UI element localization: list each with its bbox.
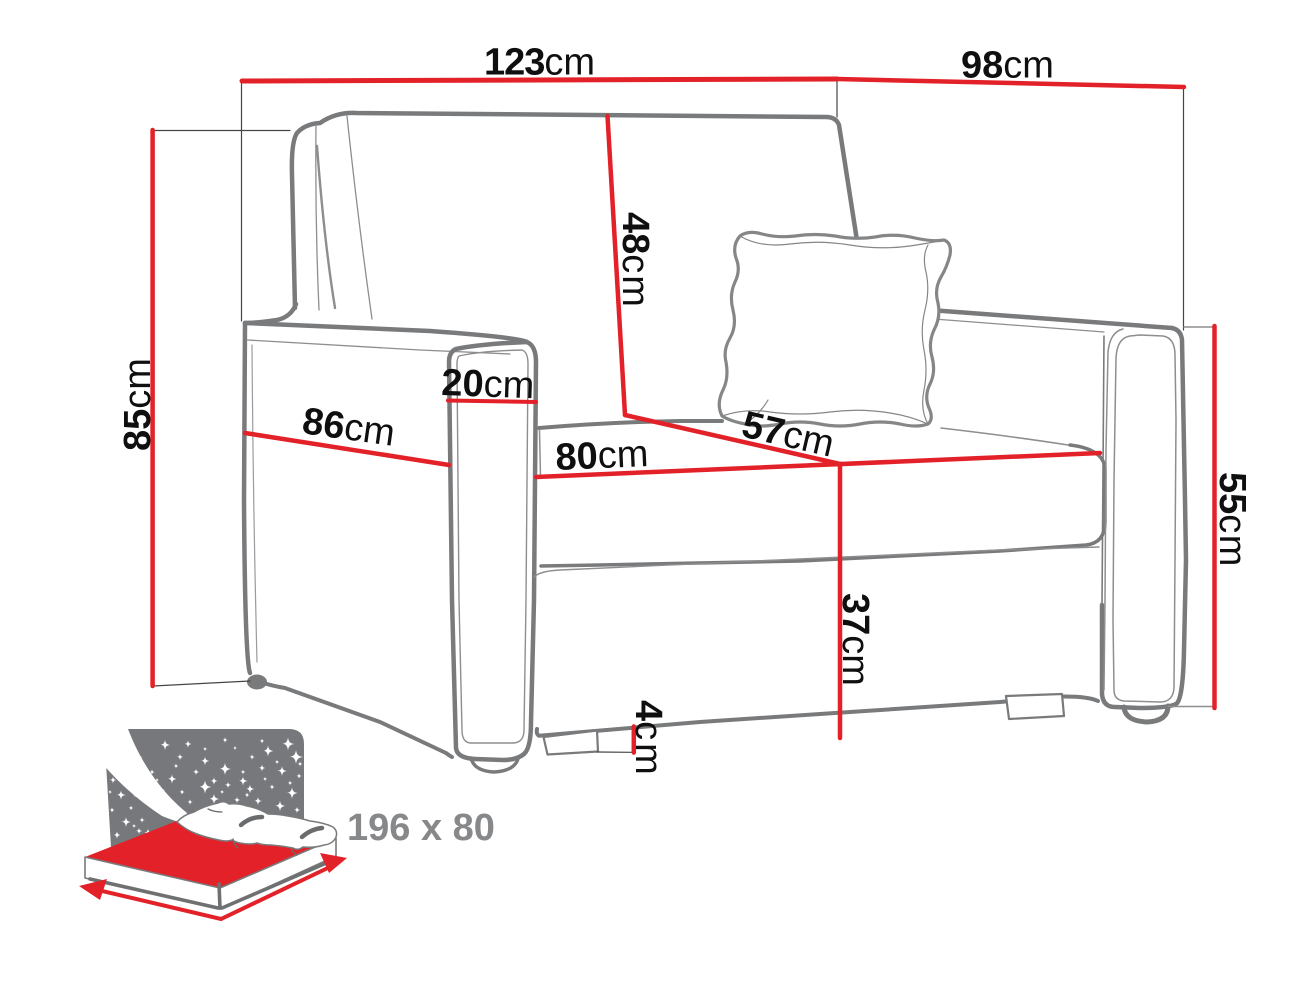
svg-text:123cm: 123cm <box>484 42 595 84</box>
svg-text:20cm: 20cm <box>441 362 535 407</box>
svg-text:85cm: 85cm <box>117 358 159 451</box>
svg-text:98cm: 98cm <box>961 45 1054 87</box>
svg-text:37cm: 37cm <box>834 593 876 686</box>
svg-text:48cm: 48cm <box>614 212 656 309</box>
svg-text:196 x 80: 196 x 80 <box>347 807 495 849</box>
svg-text:55cm: 55cm <box>1211 472 1253 568</box>
svg-text:80cm: 80cm <box>555 433 650 479</box>
svg-text:4cm: 4cm <box>627 700 669 778</box>
